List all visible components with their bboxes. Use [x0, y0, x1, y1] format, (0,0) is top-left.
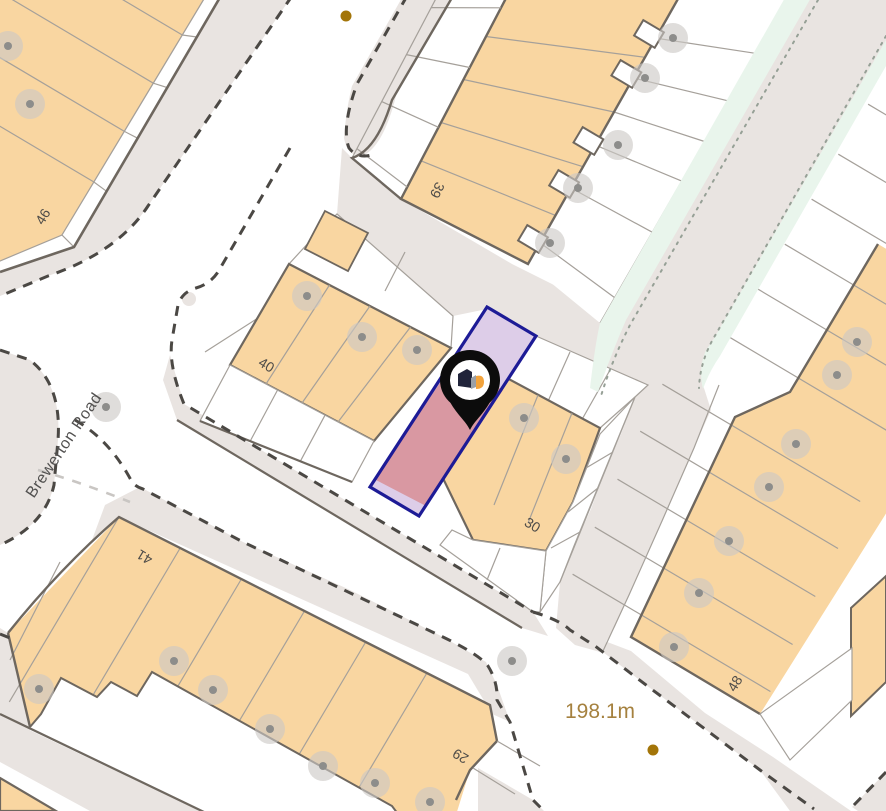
svg-text:198.1m: 198.1m: [565, 700, 635, 723]
